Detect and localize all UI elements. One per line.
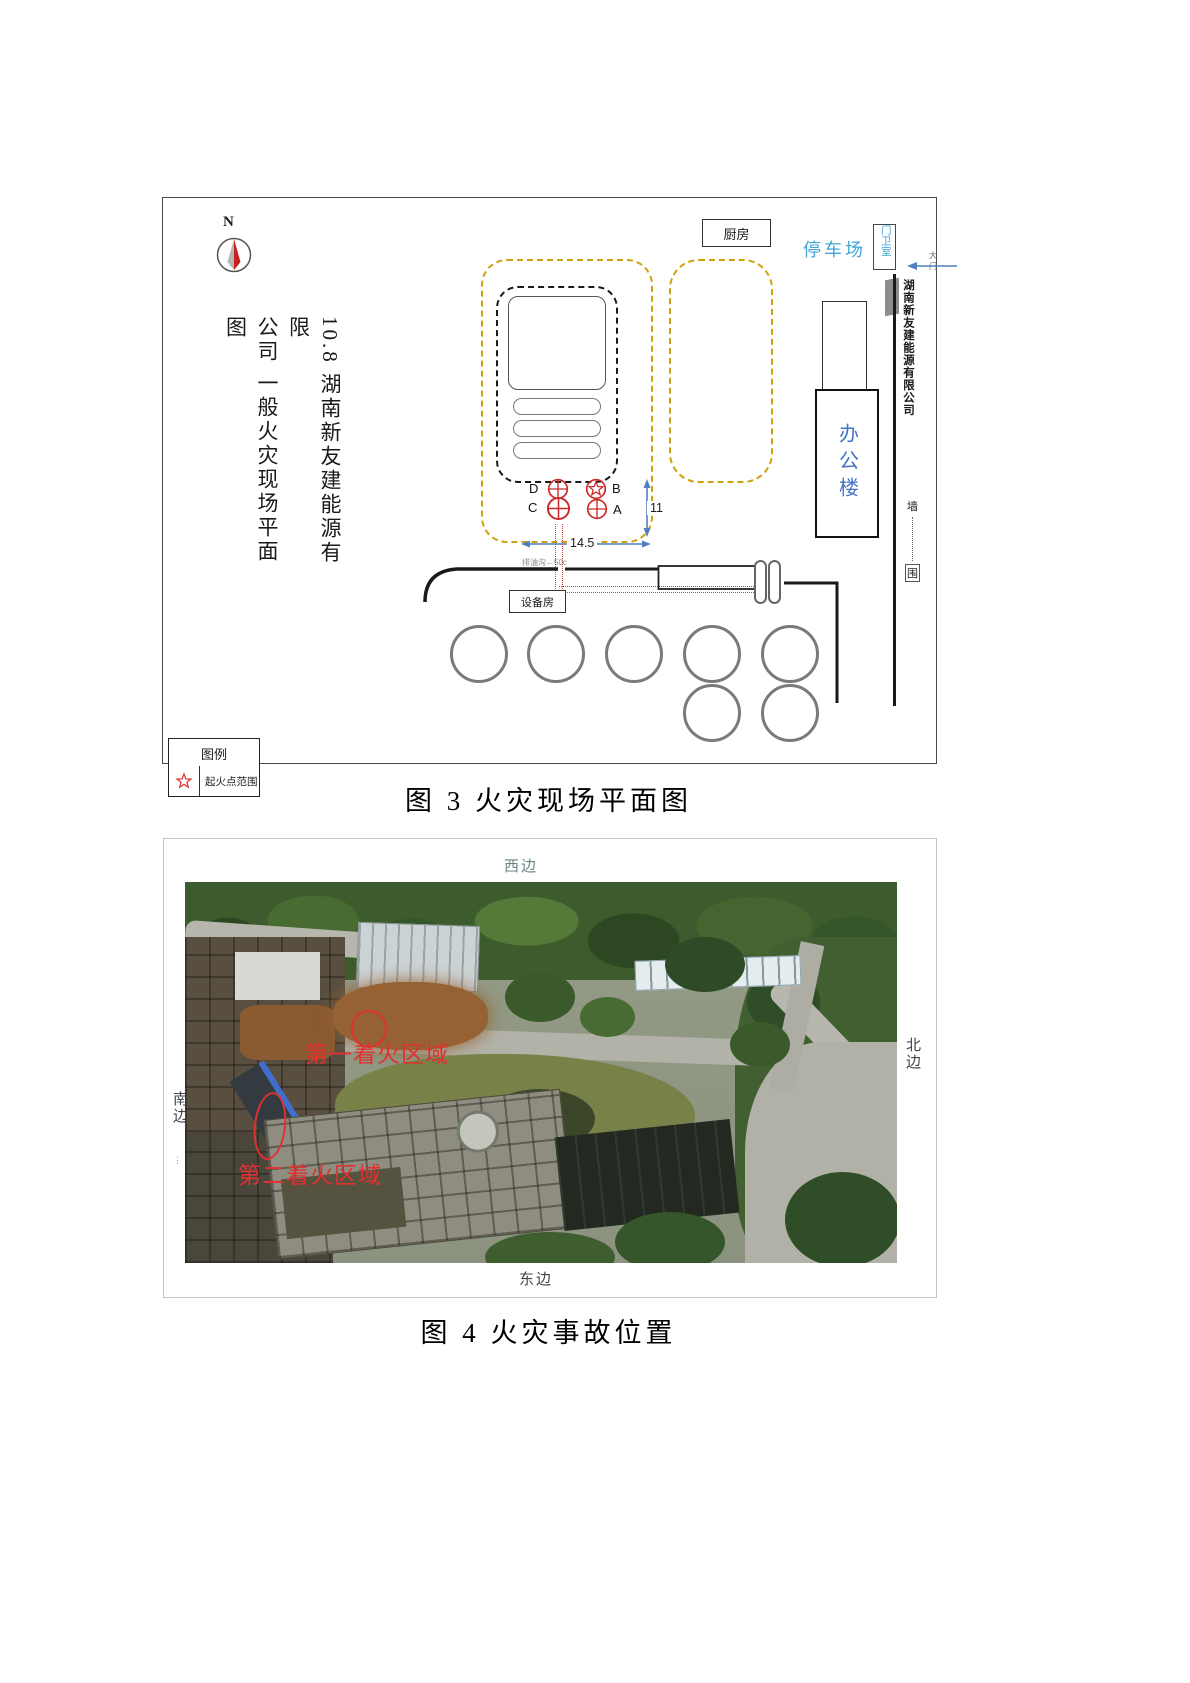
photo-tree [665, 937, 745, 992]
photo-tree [730, 1022, 790, 1067]
photo-tree [485, 1232, 615, 1263]
equipment-capsule [513, 398, 601, 415]
parking-lot-label: 停车场 [803, 236, 866, 262]
gatehouse-box: 门卫室 [873, 224, 896, 270]
marker-b-label: B [612, 481, 621, 496]
photo-tree [785, 1172, 897, 1263]
aerial-photo: 第一着火区域 第二着火区域 [185, 882, 897, 1263]
equipment-room-box: 设备房 [509, 590, 566, 613]
office-building: 办公楼 [815, 389, 879, 538]
equipment-capsule [513, 442, 601, 459]
figure-3-floor-plan: N 10.8 湖南新友建能源有限 公司 一般火灾现场平面图 厨房 停车场 门卫室… [162, 197, 937, 764]
photo-round-tank [455, 1109, 501, 1155]
fire-area-1-label: 第一着火区域 [305, 1035, 449, 1069]
legend-title: 图例 [169, 739, 259, 763]
direction-north-label: 北边 [902, 1037, 923, 1071]
marker-a-label: A [613, 502, 622, 517]
title-column-right: 10.8 湖南新友建能源有限 [282, 316, 345, 586]
document-page: N 10.8 湖南新友建能源有限 公司 一般火灾现场平面图 厨房 停车场 门卫室… [0, 0, 1190, 1683]
office-building-label: 办公楼 [833, 423, 862, 504]
north-label: N [223, 214, 234, 231]
photo-tree [615, 1212, 725, 1263]
marker-c-label: C [528, 500, 537, 515]
boundary-wall-line [893, 274, 896, 706]
gate-arrow-icon [907, 260, 963, 272]
photo-tree [505, 972, 575, 1022]
storage-tank [527, 625, 585, 683]
title-column-left: 公司 一般火灾现场平面图 [219, 316, 282, 586]
storage-tank [761, 684, 819, 742]
dimension-width-label: 14.5 [567, 536, 597, 550]
marker-d-label: D [529, 481, 538, 496]
direction-east-label: 东边 [519, 1268, 553, 1289]
photo-tree [580, 997, 635, 1037]
margin-dots: ⋮ [173, 1155, 182, 1166]
workshop-room [508, 296, 606, 390]
figure3-vertical-title: 10.8 湖南新友建能源有限 公司 一般火灾现场平面图 [219, 316, 345, 586]
equipment-room-label: 设备房 [521, 594, 554, 610]
gate-pillar-shape [885, 278, 899, 316]
fire-area-2-label: 第二着火区域 [238, 1156, 382, 1190]
storage-tank [450, 625, 508, 683]
compass-icon [215, 236, 253, 274]
marker-b-fire-origin-icon [585, 478, 607, 500]
kitchen-label: 厨房 [723, 224, 749, 243]
kitchen-label-box: 厨房 [702, 219, 771, 247]
marker-c-icon [546, 496, 571, 521]
workshop-building [496, 286, 618, 483]
figure4-caption: 图 4 火灾事故位置 [162, 1311, 935, 1350]
fence-char-top: 墙 [907, 498, 918, 514]
direction-west-label: 西边 [504, 855, 538, 876]
figure3-caption: 图 3 火灾现场平面图 [162, 779, 935, 818]
storage-tank [683, 684, 741, 742]
equipment-capsule [513, 420, 601, 437]
fire-boundary-right [669, 259, 773, 483]
office-building-upper [822, 301, 867, 391]
storage-tank [683, 625, 741, 683]
storage-tank [761, 625, 819, 683]
storage-tank [605, 625, 663, 683]
boundary-company-name: 湖南新友建能源有限公司 [900, 279, 916, 419]
figure-4-frame: 西边 南边 ⋮ 北边 东边 [163, 838, 937, 1298]
marker-a-icon [586, 498, 608, 520]
dimension-height-label: 11 [647, 501, 666, 515]
gatehouse-label: 门卫室 [879, 225, 890, 269]
fence-wall-label: 墙 围 [905, 498, 920, 582]
fence-char-bottom: 围 [905, 564, 920, 582]
photo-roof-patch [235, 952, 320, 1000]
fence-dotted-line [912, 517, 913, 561]
